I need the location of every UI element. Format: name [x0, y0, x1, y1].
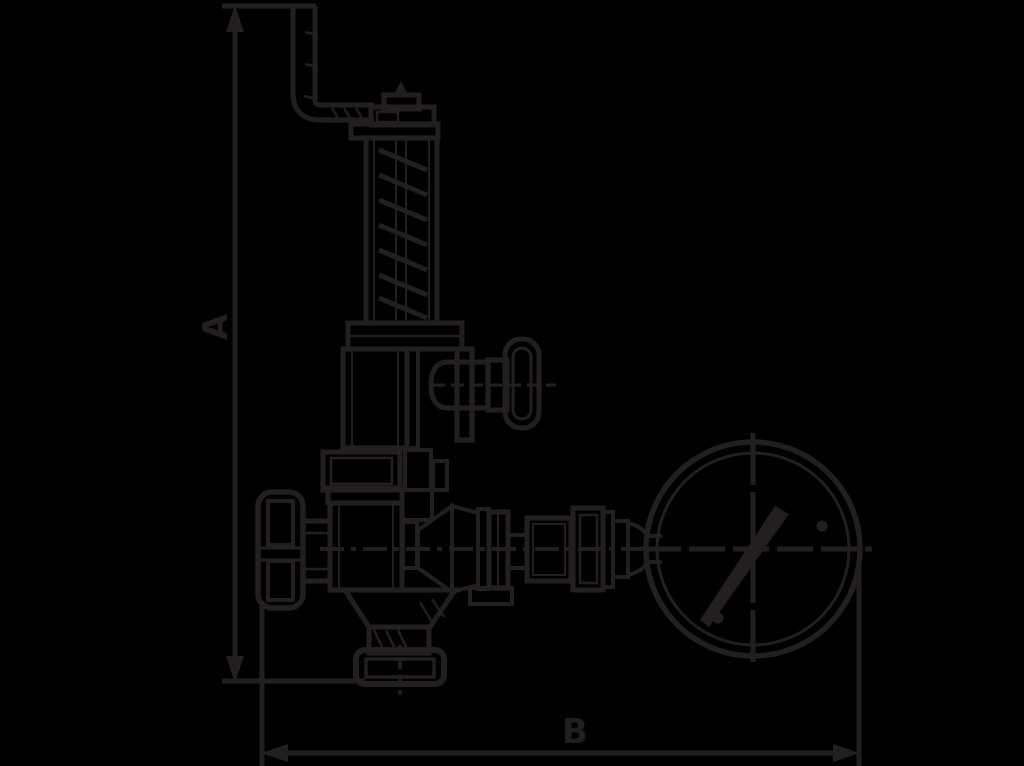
lever-arm	[293, 6, 374, 120]
gauge-pivot-dot	[817, 521, 828, 532]
union-flange-inner	[331, 458, 392, 484]
body-right-block	[402, 490, 432, 520]
test-knob	[431, 339, 556, 428]
gauge-stop-dot	[713, 613, 724, 624]
handwheel	[258, 492, 330, 608]
body-main	[330, 503, 402, 590]
valve-technical-drawing: A B	[0, 0, 1024, 766]
lever-tick	[304, 96, 313, 98]
upper-body-strip	[407, 349, 418, 448]
dimension-b-arrow-right	[833, 744, 860, 762]
pressure-gauge	[645, 433, 872, 668]
handwheel-rim-bottom	[268, 561, 293, 600]
dimension-a-arrow-top	[226, 5, 244, 32]
valve-union	[323, 450, 447, 490]
dimension-a-label: A	[196, 313, 236, 340]
dimension-b: B	[261, 562, 860, 766]
union-block	[405, 450, 431, 490]
lever-tick	[356, 108, 362, 118]
handwheel-rim-top	[268, 501, 293, 545]
union-block-small	[433, 461, 447, 490]
handwheel-outer	[258, 492, 303, 608]
lever-inner-edge	[315, 6, 374, 105]
valve-diagram-canvas: A B	[0, 0, 1024, 766]
inlet-thread	[420, 602, 432, 622]
valve-body	[328, 488, 452, 592]
dimension-b-arrow-left	[261, 744, 288, 762]
outlet-neck	[508, 535, 527, 568]
spring-coils	[379, 150, 427, 318]
bonnet-upper-flange	[351, 124, 438, 138]
spring-bonnet	[343, 81, 472, 448]
gauge-needle	[700, 506, 789, 627]
cap-slot	[377, 112, 398, 122]
dimension-b-label: B	[562, 712, 588, 752]
lever-tick	[344, 108, 350, 118]
body-right-bar	[403, 522, 417, 568]
lever-tick	[332, 108, 338, 118]
